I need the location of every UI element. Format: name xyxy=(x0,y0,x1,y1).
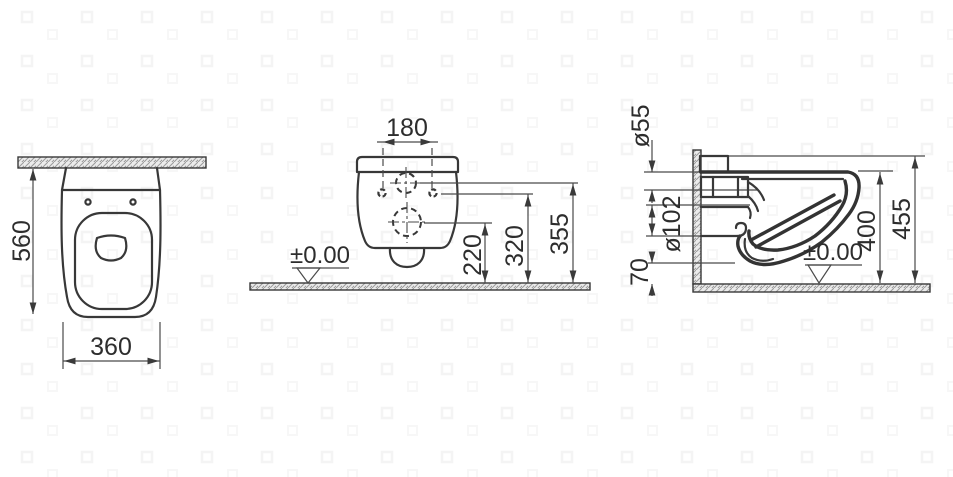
dim-depth-label: 560 xyxy=(8,220,36,262)
technical-drawing-canvas: 560 360 180 xyxy=(0,0,953,477)
floor-section-band xyxy=(250,283,590,290)
wall-section-band xyxy=(18,157,206,168)
dim-outlet-height-label: 220 xyxy=(459,234,487,276)
floor-level-label-side: ±0.00 xyxy=(803,239,863,266)
dim-overall-height-label: 455 xyxy=(888,198,916,240)
floor-level-label-rear: ±0.00 xyxy=(290,242,350,269)
dim-bolt-spacing-label: 180 xyxy=(386,114,428,142)
dim-inlet-height-label: 355 xyxy=(546,213,574,255)
dim-width-label: 360 xyxy=(90,333,132,361)
dim-outlet-diameter-label: ø102 xyxy=(658,196,686,253)
wall-hung-wc-drawing: 560 360 180 xyxy=(0,0,953,477)
dim-inlet-diameter-label: ø55 xyxy=(627,104,655,147)
dim-bolt-height-label: 320 xyxy=(501,225,529,267)
floor-section-band-side xyxy=(693,284,930,292)
dim-clearance-label: 70 xyxy=(626,258,654,286)
